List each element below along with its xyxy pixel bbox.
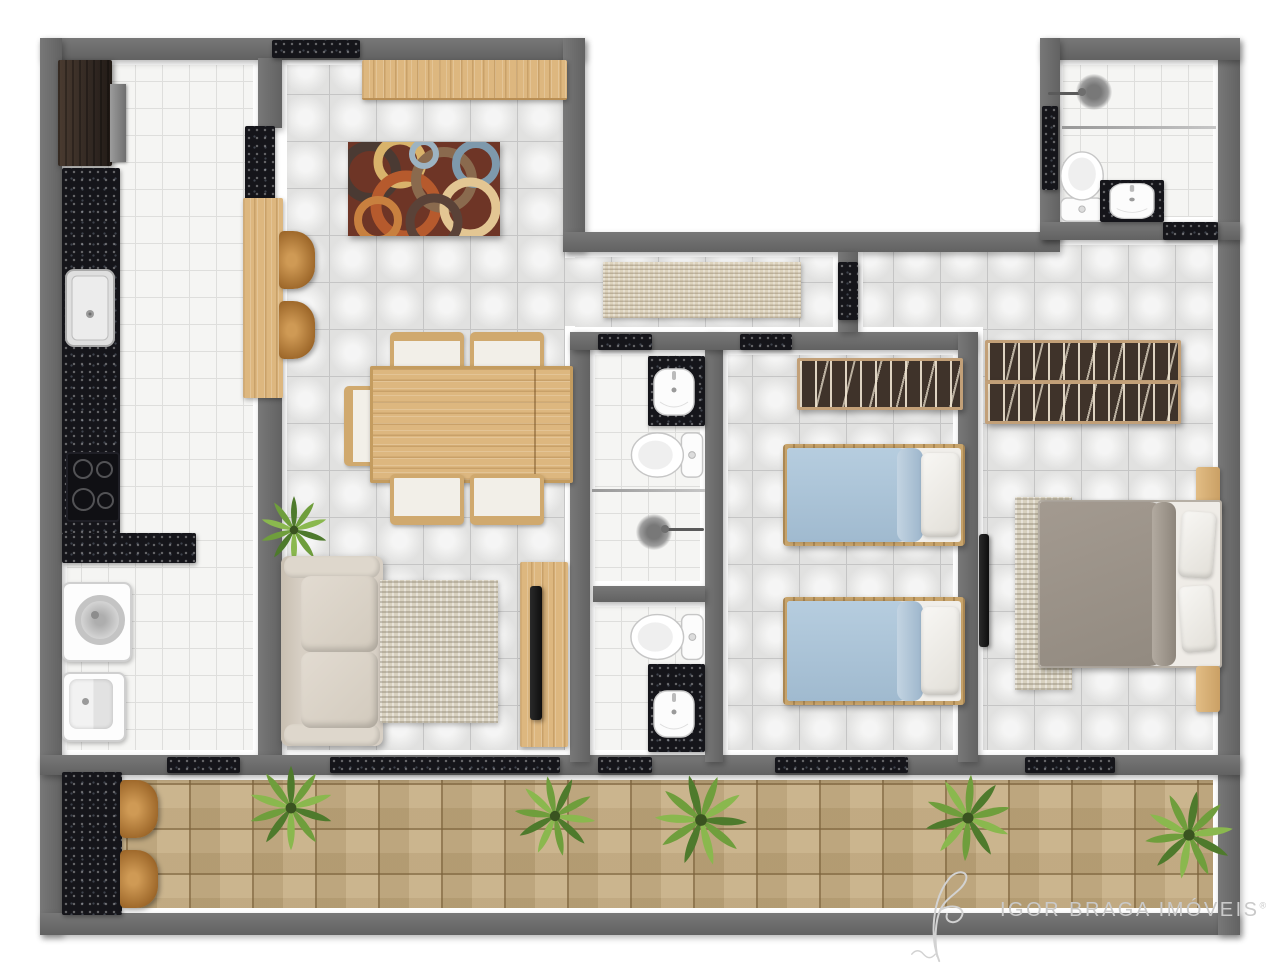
dining-table xyxy=(370,366,573,483)
shower-head-icon xyxy=(661,525,669,533)
refrigerator-handle-panel xyxy=(110,84,126,162)
shower-head-icon xyxy=(1078,88,1086,96)
laundry-tank xyxy=(62,672,126,742)
exterior-wall-left xyxy=(40,38,62,935)
watermark-text: IGOR BRAGA IMÓVEIS® xyxy=(1000,899,1266,922)
pillow xyxy=(1178,511,1217,579)
hall-floor-join xyxy=(563,258,577,326)
bar-stool xyxy=(120,850,158,908)
single-bed-1 xyxy=(783,444,965,546)
dining-chair xyxy=(390,474,464,525)
blanket-fold xyxy=(897,601,923,701)
bath-column-right-wall xyxy=(705,332,723,762)
plant-icon xyxy=(1135,781,1244,890)
shower-arm xyxy=(666,528,704,531)
burner-icon xyxy=(73,459,93,479)
bathroom2-toilet xyxy=(628,611,706,663)
watermark-brand: IGOR BRAGA IMÓVEIS xyxy=(1000,899,1260,921)
circle-pattern-rug xyxy=(348,142,500,236)
service-bath-window xyxy=(1042,106,1058,190)
service-bath-door-threshold xyxy=(1163,222,1218,240)
shower-glass-partition xyxy=(1062,126,1216,129)
bathroom1-basin xyxy=(652,366,696,418)
burner-icon xyxy=(72,488,95,511)
tank-basin xyxy=(69,679,113,729)
kitchen-sink xyxy=(64,268,116,348)
bar-stool xyxy=(279,231,315,289)
breakfast-bar xyxy=(243,198,283,398)
pillow xyxy=(921,607,959,695)
master-wall-tv xyxy=(979,534,989,647)
service-bath-toilet xyxy=(1058,150,1106,224)
kitchen-living-wall-upper xyxy=(258,58,282,128)
master-door-threshold xyxy=(838,262,858,320)
master-wardrobe-row-2 xyxy=(985,381,1181,424)
hallway-runner-rug xyxy=(603,262,801,318)
bedroom2-wardrobe xyxy=(797,358,963,410)
plant-icon xyxy=(246,763,336,853)
bar-partition-granite xyxy=(245,126,275,200)
bathroom-1-door-threshold xyxy=(598,334,652,350)
service-balcony-door-threshold xyxy=(167,757,240,773)
bathroom2-basin xyxy=(652,688,696,740)
exterior-wall-top-right xyxy=(1040,38,1240,60)
sofa-cushion xyxy=(301,576,378,652)
nightstand xyxy=(1196,666,1220,712)
master-floor-join xyxy=(983,325,1213,339)
bed-blanket xyxy=(1040,502,1164,666)
pillow xyxy=(1178,585,1217,653)
balcony-floor xyxy=(62,775,1218,913)
bathroom1-toilet xyxy=(628,430,706,480)
bed-blanket xyxy=(787,448,913,542)
double-bed xyxy=(1038,500,1222,668)
burner-icon xyxy=(96,461,113,478)
single-bed-2 xyxy=(783,597,965,705)
kitchen-counter-horizontal xyxy=(62,533,196,563)
refrigerator xyxy=(58,60,112,166)
tv-console xyxy=(520,562,568,747)
master-balcony-door-threshold xyxy=(1025,757,1115,773)
service-bath-basin xyxy=(1108,182,1156,220)
sideboard xyxy=(362,60,567,100)
bedroom2-balcony-door-threshold xyxy=(775,757,908,773)
bathroom-2-door-threshold xyxy=(598,757,652,773)
floor-plan-canvas: IGOR BRAGA IMÓVEIS® xyxy=(0,0,1280,965)
cooktop xyxy=(66,452,120,522)
living-balcony-door-threshold xyxy=(330,757,560,773)
sofa xyxy=(281,556,383,746)
sofa-cushion xyxy=(301,652,378,728)
bathrooms-divider-wall xyxy=(593,586,705,602)
burner-icon xyxy=(97,492,114,509)
sofa-arm xyxy=(284,556,380,578)
bath-column-left-wall xyxy=(570,332,590,762)
shower-arm xyxy=(1048,92,1082,95)
pillow xyxy=(921,453,959,537)
registered-mark: ® xyxy=(1260,900,1267,910)
blanket-fold xyxy=(897,448,923,542)
tv xyxy=(530,586,542,720)
washer-drum-center xyxy=(91,611,99,619)
master-wardrobe-row-1 xyxy=(985,340,1181,383)
bed-blanket xyxy=(787,601,913,701)
kitchen-living-wall-lower xyxy=(258,396,282,762)
watermark-logo-signature xyxy=(900,866,998,964)
washing-machine xyxy=(62,582,132,662)
living-area-rug xyxy=(380,580,498,723)
shower-glass-partition xyxy=(592,489,705,492)
washer-drum xyxy=(75,595,125,645)
living-room-window xyxy=(272,40,360,58)
bar-stool xyxy=(120,780,158,838)
table-extension-divider xyxy=(534,369,536,474)
bar-stool xyxy=(279,301,315,359)
bedroom-2-door-threshold xyxy=(740,334,792,350)
dining-chair xyxy=(470,474,544,525)
sofa-back xyxy=(281,556,301,746)
master-entry-floor xyxy=(858,240,1218,332)
blanket-fold xyxy=(1152,502,1176,666)
hallway-top-wall xyxy=(563,232,1060,252)
tank-drain xyxy=(82,698,89,705)
balcony-bar-counter xyxy=(62,772,122,915)
